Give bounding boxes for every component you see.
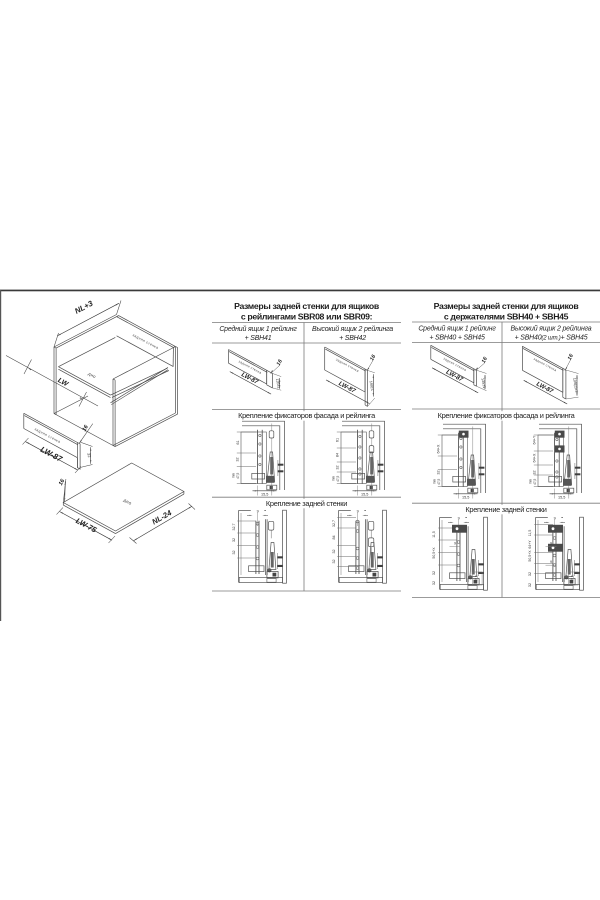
svg-text:84: 84 [336,453,340,457]
svg-text:16: 16 [481,355,490,364]
svg-text:задняя стенка: задняя стенка [533,357,557,373]
svg-text:9: 9 [550,542,552,546]
svg-text:15,5: 15,5 [361,492,368,496]
svg-text:135±1: 135±1 [275,378,281,389]
svg-text:Размеры задней стенки для ящик: Размеры задней стенки для ящиков [234,301,379,311]
svg-text:64+Y: 64+Y [528,540,532,549]
svg-text:Средний ящик 1 рейлинг: Средний ящик 1 рейлинг [219,325,297,333]
svg-text:+ SBH42: + SBH42 [339,335,366,342]
svg-text:32: 32 [432,581,436,585]
svg-text:199±1: 199±1 [369,380,375,391]
svg-text:50,5+X: 50,5+X [528,550,532,562]
svg-text:84: 84 [332,535,336,539]
svg-text:+ SBH40 + SBH45: + SBH40 + SBH45 [429,335,485,342]
svg-text:32: 32 [432,571,436,575]
svg-text:32: 32 [528,583,532,587]
svg-text:64+Y: 64+Y [533,435,537,444]
svg-text:Крепление задней стенки: Крепление задней стенки [266,499,347,508]
svg-text:11,5: 11,5 [528,530,532,537]
svg-text:32: 32 [437,470,441,474]
svg-text:32: 32 [336,465,340,469]
svg-text:47,5: 47,5 [533,478,537,484]
svg-text:50,5+X: 50,5+X [432,547,436,559]
svg-text:32,7: 32,7 [232,524,236,531]
svg-text:9: 9 [550,560,552,564]
svg-text:дно: дно [87,371,97,379]
svg-text:47,5: 47,5 [437,478,441,484]
svg-text:32: 32 [332,549,336,553]
svg-text:дно: дно [123,497,133,506]
svg-text:47,5: 47,5 [236,472,240,478]
svg-text:199(2)±1: 199(2)±1 [572,378,578,393]
svg-text:LW-87: LW-87 [240,371,260,386]
svg-text:+ SBH41: + SBH41 [245,335,272,342]
svg-text:Крепление фиксаторов фасада и: Крепление фиксаторов фасада и рейлинга [438,411,576,420]
svg-text:задняя стенка: задняя стенка [335,358,359,374]
svg-text:задняя стенка: задняя стенка [443,357,467,373]
svg-text:Крепление фиксаторов фасада и: Крепление фиксаторов фасада и рейлинга [238,411,376,420]
svg-text:16: 16 [276,358,285,367]
svg-text:135±1: 135±1 [481,378,487,389]
svg-text:61: 61 [236,440,240,444]
svg-text:с рейлингами SBR08 или SBR09:: с рейлингами SBR08 или SBR09: [241,312,373,322]
svg-text:NL+3: NL+3 [73,298,95,315]
svg-text:16: 16 [567,352,576,361]
svg-text:LW-75: LW-75 [74,516,98,535]
svg-text:64+X: 64+X [533,453,537,462]
svg-text:32,7: 32,7 [332,520,336,527]
svg-text:Высокий ящик 2 рейлинга: Высокий ящик 2 рейлинга [312,325,393,333]
svg-text:15,5: 15,5 [261,492,268,496]
svg-text:47,5: 47,5 [475,575,479,581]
svg-text:32: 32 [533,470,537,474]
svg-text:61: 61 [336,438,340,442]
svg-text:9: 9 [454,542,456,546]
svg-text:Размеры задней стенки для ящик: Размеры задней стенки для ящиков [434,301,579,311]
svg-text:32: 32 [232,550,236,554]
svg-text:15,5: 15,5 [558,495,565,499]
svg-text:64+X: 64+X [437,444,441,453]
svg-text:32: 32 [86,453,92,459]
svg-text:16: 16 [82,424,91,433]
svg-text:32: 32 [232,538,236,542]
svg-text:Высокий ящик 2 рейлинга: Высокий ящик 2 рейлинга [511,325,592,333]
svg-text:11,5: 11,5 [432,531,436,538]
svg-text:Средний ящик 1 рейлинг: Средний ящик 1 рейлинг [418,325,496,333]
svg-text:LW-87: LW-87 [39,445,64,464]
svg-text:47,5: 47,5 [336,475,340,481]
svg-text:с держателями SBH40 + SBH45: с держателями SBH40 + SBH45 [444,312,569,322]
svg-text:Крепление задней стенки: Крепление задней стенки [465,505,546,514]
svg-text:15,5: 15,5 [462,495,469,499]
svg-text:32: 32 [332,559,336,563]
svg-text:LW-87: LW-87 [445,369,465,384]
svg-text:32: 32 [236,457,240,461]
svg-text:32: 32 [528,572,532,576]
svg-text:47,5: 47,5 [571,575,575,581]
svg-text:16: 16 [369,353,378,362]
svg-text:+ SBH40(2 шт.)+ SBH45: + SBH40(2 шт.)+ SBH45 [515,335,588,342]
